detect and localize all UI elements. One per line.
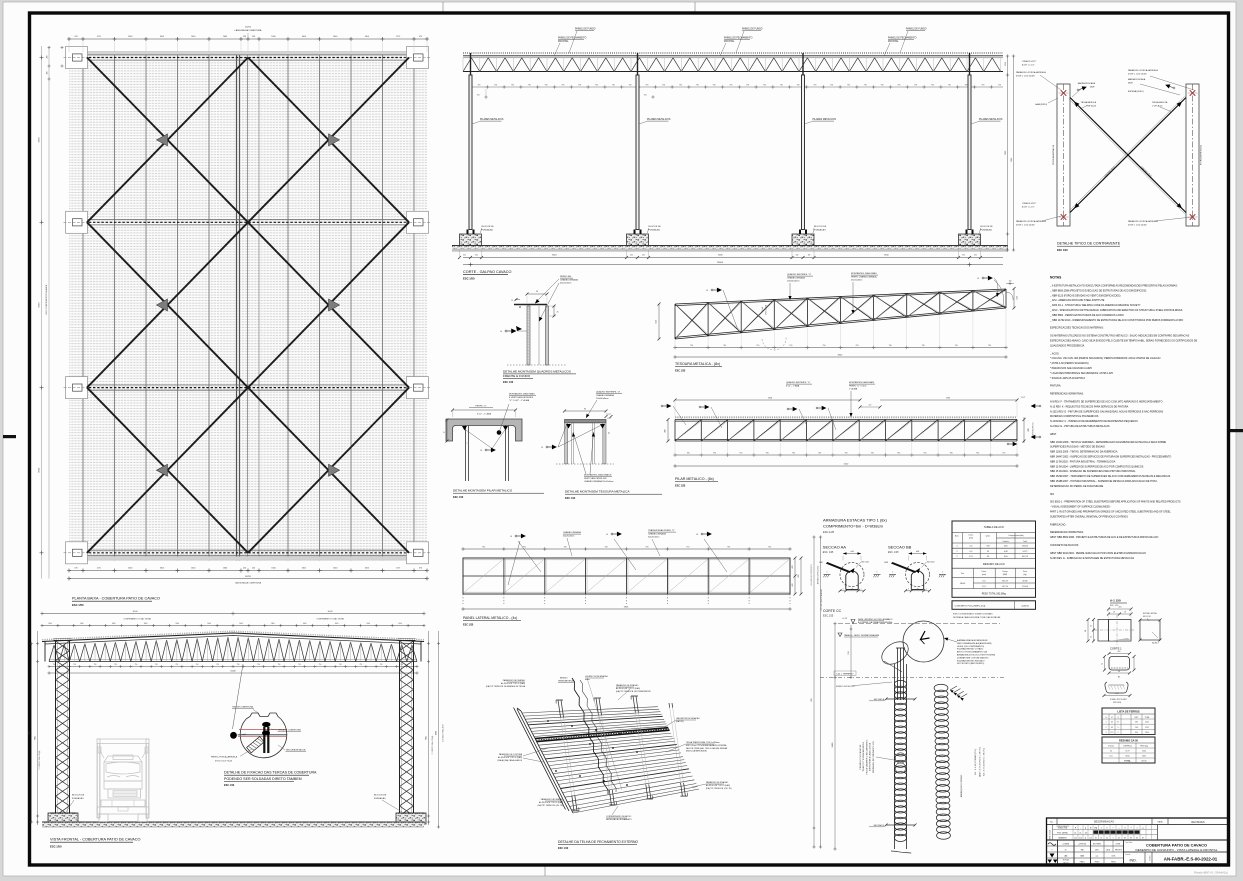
svg-text:TELHA-MESCLA: TELHA-MESCLA [1152, 101, 1168, 104]
svg-text:Plotada ABNT-A1 / 594x841(c): Plotada ABNT-A1 / 594x841(c) [1194, 871, 1228, 874]
svg-text:790: 790 [629, 84, 632, 86]
svg-text:0.85: 0.85 [1135, 722, 1138, 724]
svg-text:CIVIL: CIVIL [1111, 856, 1115, 858]
svg-text:(BATOR): (BATOR) [676, 720, 684, 723]
svg-text:QUADRO EM PERFIL "U": QUADRO EM PERFIL "U" [787, 273, 811, 276]
svg-text:790: 790 [645, 84, 648, 86]
svg-text:Ø (mm): Ø (mm) [1108, 746, 1114, 748]
svg-text:PAINEL DE FUNDO: PAINEL DE FUNDO [742, 28, 763, 31]
svg-text:GAIA (FURO): GAIA (FURO) [1035, 103, 1048, 106]
svg-text:750: 750 [278, 664, 281, 666]
svg-text:750: 750 [135, 664, 138, 666]
svg-text:FESO: FESO [1080, 862, 1085, 864]
svg-text:AL Ø1/4"x7/8" TIPO 2 (DAD): AL Ø1/4"x7/8" TIPO 2 (DAD) [498, 756, 522, 759]
svg-text:790: 790 [713, 84, 716, 86]
svg-text:790: 790 [823, 345, 826, 347]
svg-text:_ NBR 8800:2008 (PROJETO E EXE: _ NBR 8800:2008 (PROJETO E EXECUCAO DE E… [1049, 289, 1146, 292]
svg-text:FUNDO DO BLOCO: FUNDO DO BLOCO [836, 686, 855, 688]
svg-text:AL Ø1/4"x7/8" TIPO 2 (DAD): AL Ø1/4"x7/8" TIPO 2 (DAD) [539, 801, 563, 804]
svg-text:"PILASTICO" E ESPACADORES A: "PILASTICO" E ESPACADORES A [862, 742, 865, 772]
svg-text:BLOCOS DE: BLOCOS DE [981, 226, 994, 228]
svg-text:PAINEL DE FUNDO: PAINEL DE FUNDO [906, 28, 927, 31]
svg-text:FESO: FESO [1111, 862, 1116, 864]
svg-text:PESO (kg): PESO (kg) [1140, 746, 1148, 748]
svg-text:PINTURA:: PINTURA: [1050, 385, 1061, 388]
svg-text:ABNT: ABNT [1050, 433, 1057, 436]
svg-text:ø38: ø38 [850, 551, 853, 553]
svg-text:790: 790 [727, 546, 730, 548]
svg-text:a/LINHA: a/LINHA [1063, 843, 1070, 846]
svg-text:_ A ESTRUTURA METALICA FOI EXE: _ A ESTRUTURA METALICA FOI EXECUTADA CON… [1049, 285, 1178, 288]
svg-text:N-2 REV. E - PINTURA DE ESTRUT: N-2 REV. E - PINTURA DE ESTRUTURAS METAL… [1050, 425, 1110, 428]
svg-text:ABNT NBR 6118:2003 - PERMILI E: ABNT NBR 6118:2003 - PERMILI EDUCACAO PO… [1050, 552, 1146, 555]
svg-text:790: 790 [897, 84, 900, 86]
svg-text:400: 400 [665, 429, 667, 432]
svg-text:CORRENTE/EIXO DE APOIO: CORRENTE/EIXO DE APOIO [606, 815, 632, 818]
svg-text:DETERMINACAO DO PERFIL DE RUGO: DETERMINACAO DO PERFIL DE RUGOSIDADE [1050, 485, 1104, 488]
svg-text:MONTANTES, DIAGONAIS E: MONTANTES, DIAGONAIS E [584, 474, 612, 477]
svg-text:25x15x3mm: 25x15x3mm [851, 280, 863, 282]
svg-text:RESUMO CA-50: RESUMO CA-50 [1119, 739, 1139, 742]
svg-text:COBERTURA PATIO DE CAVACO: COBERTURA PATIO DE CAVACO [1146, 843, 1207, 848]
svg-text:750: 750 [400, 664, 403, 666]
svg-text:PERFIL EM: PERFIL EM [560, 276, 571, 278]
svg-text:TESOURA METALICA: TESOURA METALICA [1199, 145, 1202, 166]
svg-text:CONCRETO FCK=25MPa (m3): CONCRETO FCK=25MPa (m3) [955, 605, 986, 607]
svg-text:15: 15 [1102, 663, 1104, 665]
svg-text:2: 2 [956, 551, 957, 553]
svg-text:0,48: 0,48 [1004, 551, 1008, 553]
svg-text:- VISUAL ASSESSMENT OF SURFACE: - VISUAL ASSESSMENT OF SURFACE CLEANLINE… [1050, 506, 1111, 509]
svg-text:22.32: 22.32 [1145, 727, 1149, 729]
svg-text:AN-FABR.-E.S-00-2022-01: AN-FABR.-E.S-00-2022-01 [1164, 857, 1218, 862]
svg-text:TIRA DE COBERTURA: TIRA DE COBERTURA [232, 706, 254, 709]
svg-text:7000: 7000 [718, 255, 724, 257]
svg-text:1600: 1600 [160, 568, 164, 570]
svg-text:PERFIL+PORCA+ARRUELA: PERFIL+PORCA+ARRUELA [211, 756, 238, 759]
svg-text:# 5/8" A=25: # 5/8" A=25 [1086, 104, 1097, 107]
svg-text:(DA) TIP. TERM./CB. DE EMENDE: (DA) TIP. TERM./CB. DE EMENDE DE TELHA [486, 685, 526, 688]
svg-text:554: 554 [1017, 296, 1019, 299]
svg-text:790: 790 [813, 84, 816, 86]
svg-text:300: 300 [796, 255, 799, 257]
svg-text:Ø 5/8" x 1.1/2" A-325: Ø 5/8" x 1.1/2" A-325 [1128, 223, 1148, 226]
svg-text:NBR 15299:2007 - TRATAMENTO DE: NBR 15299:2007 - TRATAMENTO DE SUPERFICI… [1050, 475, 1171, 478]
svg-text:NOME: NOME [1116, 844, 1121, 846]
svg-text:SER DOBRADA PELA A (ANGRIGEM): SER DOBRADA PELA A (ANGRIGEM) [957, 642, 992, 645]
svg-text:RETIRADA CABECA SOBRA TOTAL DA: RETIRADA CABECA SOBRA TOTAL DAS ESTACAS. [953, 616, 1001, 619]
svg-text:EQUIVALENTE AO INDICADO: EQUIVALENTE AO INDICADO [957, 659, 985, 662]
svg-text:N4-Ø6.3: N4-Ø6.3 [1152, 643, 1158, 645]
svg-text:99: 99 [987, 556, 989, 558]
svg-text:_ NBR 5884 - PERFIS ESTRUTURAI: _ NBR 5884 - PERFIS ESTRUTURAIS DE ACO F… [1049, 314, 1124, 317]
svg-text:DESCRIMINACAO: DESCRIMINACAO [1094, 821, 1114, 824]
svg-text:790: 790 [746, 84, 749, 86]
svg-text:12,5: 12,5 [969, 556, 973, 558]
svg-text:ESC 1/50: ESC 1/50 [463, 277, 475, 281]
svg-text:(CADA) (DA) CADA xDADOS: (CADA) (DA) CADA xDADOS [497, 759, 523, 762]
svg-text:FUNDACAO: FUNDACAO [981, 228, 993, 231]
svg-text:BARRA ROSCADA: BARRA ROSCADA [1128, 78, 1146, 81]
svg-text:300: 300 [475, 255, 478, 257]
svg-text:370: 370 [986, 546, 989, 548]
svg-text:296,00: 296,00 [1022, 546, 1028, 548]
svg-text:(N): (N) [1094, 828, 1097, 830]
svg-text:N-13 REV. K - REQUISITOS TECNI: N-13 REV. K - REQUISITOS TECNICOS PARA S… [1050, 405, 1129, 408]
svg-text:12.5: 12.5 [1109, 756, 1112, 758]
svg-text:NIVEL INTERNO DO PISO ACABADO: NIVEL INTERNO DO PISO ACABADO [858, 618, 893, 621]
svg-text:10: 10 [500, 331, 502, 333]
svg-text:PESO TOTAL 562,38kg: PESO TOTAL 562,38kg [982, 592, 1007, 595]
svg-text:PAINEL LATERAL METALICO - (4x): PAINEL LATERAL METALICO - (4x) [463, 616, 517, 620]
svg-text:COMPRIMENTO TOTAL TELHA: COMPRIMENTO TOTAL TELHA [316, 617, 344, 620]
svg-text:ISO 8501-1 - PREPARATION OF ST: ISO 8501-1 - PREPARATION OF STEEL SUBSTR… [1050, 501, 1181, 504]
svg-text:motor: motor [585, 678, 590, 681]
svg-text:95: 95 [584, 409, 586, 411]
svg-text:6000: 6000 [39, 137, 41, 143]
svg-text:790: 790 [931, 84, 934, 86]
svg-text:170,00: 170,00 [1022, 586, 1028, 588]
svg-text:ABNT NBR 8800:2008 - PROJETO E: ABNT NBR 8800:2008 - PROJETO E ESTRUTURA… [1050, 536, 1159, 539]
svg-text:750: 750 [114, 664, 117, 666]
svg-text:(DA) TIP. TERM./CB. (CB. TE): (DA) TIP. TERM./CB. (CB. TE) [538, 804, 564, 807]
svg-text:10: 10 [706, 290, 708, 292]
svg-text:↓: ↓ [1080, 827, 1081, 830]
svg-text:12.5: 12.5 [1111, 732, 1114, 734]
svg-text:300: 300 [962, 255, 965, 257]
svg-text:10: 10 [606, 534, 608, 536]
svg-text:6.3: 6.3 [1111, 727, 1113, 729]
svg-text:RESUMO DE ACO: RESUMO DE ACO [983, 562, 1005, 566]
svg-text:ESC 1/10: ESC 1/10 [453, 496, 464, 499]
svg-text:790: 790 [914, 84, 917, 86]
svg-text:2": 2" [444, 431, 446, 433]
svg-text:≡: ≡ [1136, 827, 1137, 830]
svg-text:16040: 16040 [230, 670, 235, 672]
svg-text:AL Ø1/4"x7/8" TIPO 2 (DAD): AL Ø1/4"x7/8" TIPO 2 (DAD) [501, 682, 525, 685]
svg-text:Ø6.3 C/10: Ø6.3 C/10 [1143, 616, 1151, 618]
svg-text:DES.: DES. [1095, 850, 1099, 852]
svg-text:214: 214 [1089, 838, 1092, 840]
svg-text:1600: 1600 [160, 36, 164, 38]
svg-text:DETALHE MONTAGEM PILAR METALIC: DETALHE MONTAGEM PILAR METALICO [453, 489, 513, 493]
svg-text:ESC 1/10: ESC 1/10 [224, 784, 235, 787]
svg-text:1600: 1600 [302, 36, 306, 38]
svg-text:790: 790 [578, 84, 581, 86]
svg-text:DA TELHA DE FECHAMENTO: DA TELHA DE FECHAMENTO [606, 818, 632, 821]
svg-text:VOLUME DA ESCAVACAO: VOLUME DA ESCAVACAO [820, 588, 823, 611]
svg-text:PERFIL "U" 1"x1/2": PERFIL "U" 1"x1/2" [849, 385, 867, 387]
svg-text:B.L: B.L [1079, 833, 1081, 835]
svg-text:BLOCOS DE: BLOCOS DE [72, 795, 85, 797]
svg-text:* LIGACOES PRINCIPAIS E SECUND: * LIGACOES PRINCIPAIS E SECUNDARIAS: AST… [1050, 372, 1113, 375]
svg-text:6,3: 6,3 [970, 546, 973, 548]
svg-text:250: 250 [252, 36, 255, 38]
svg-text:CHAPA DOBRADA: CHAPA DOBRADA [648, 532, 666, 535]
svg-text:AL Ø1/4"x7/8" TIPO 2 (DAD): AL Ø1/4"x7/8" TIPO 2 (DAD) [616, 687, 640, 690]
svg-text:BLOCOS DE: BLOCOS DE [814, 226, 827, 228]
svg-text:Comprimentos(dm): Comprimentos(dm) [1008, 534, 1024, 537]
svg-text:Ø 5/8" x 1.1/2" A-325: Ø 5/8" x 1.1/2" A-325 [1016, 223, 1036, 226]
svg-text:COMPRIMENTO TOTAL TELHA: COMPRIMENTO TOTAL TELHA [123, 617, 151, 620]
svg-text:FUNDACAO: FUNDACAO [814, 228, 826, 231]
svg-text:790: 790 [545, 84, 548, 86]
svg-text:56.32: 56.32 [1142, 756, 1146, 758]
svg-text:790: 790 [477, 84, 480, 86]
svg-text:16761: 16761 [245, 576, 252, 578]
svg-text:790: 790 [679, 84, 682, 86]
svg-text:18: 18 [1124, 612, 1126, 614]
svg-text:1600: 1600 [144, 623, 148, 625]
svg-text:CHAPA DOBRADA: CHAPA DOBRADA [596, 394, 614, 397]
svg-text:ESPECIFICACOES TECNICAS DOS MA: ESPECIFICACOES TECNICAS DOS MATERIAIS: [1050, 327, 1104, 330]
svg-text:754: 754 [477, 95, 480, 97]
svg-text:ESC.1/25: ESC.1/25 [823, 615, 834, 618]
svg-text:250: 250 [252, 568, 255, 570]
svg-text:31.45: 31.45 [1145, 722, 1149, 724]
svg-text:N3 - 5 # 10,0 C/MAO (7%): N3 - 5 # 10,0 C/MAO (7%) [974, 749, 977, 775]
svg-text:6"x2" - 1" ABA: 6"x2" - 1" ABA [786, 384, 800, 387]
svg-text:A CONFER. DA OBRA (ESPESSURA): A CONFER. DA OBRA (ESPESSURA) [858, 621, 893, 624]
svg-text:VOLUME DE CONCRETO: VOLUME DE CONCRETO [811, 564, 813, 586]
svg-text:570: 570 [419, 568, 422, 570]
svg-text:790: 790 [864, 84, 867, 86]
svg-text:10: 10 [510, 536, 512, 538]
svg-text:VISTA FRONTAL - COBERTURA PATI: VISTA FRONTAL - COBERTURA PATIO DE CAVAC… [50, 838, 141, 842]
svg-text:ARMADURA DO BLOCO, ESTE PODERA: ARMADURA DO BLOCO, ESTE PODERA [957, 654, 995, 657]
svg-text:GUIDE (110 COMPRIMENTO): GUIDE (110 COMPRIMENTO) [957, 646, 984, 648]
svg-text:PARAFUSO+PORCA+ARRUELA: PARAFUSO+PORCA+ARRUELA [1016, 220, 1046, 223]
svg-text:PARAFUSO DE FIXACAO: PARAFUSO DE FIXACAO [706, 781, 729, 784]
svg-text:SECCAO AA: SECCAO AA [823, 545, 846, 550]
svg-text:DETALHE TIPICO DE CONTRAVENTE: DETALHE TIPICO DE CONTRAVENTE [1057, 242, 1121, 246]
svg-text:1175: 1175 [97, 36, 101, 38]
svg-text:7461: 7461 [34, 736, 36, 740]
svg-text:Num.: Num. [955, 536, 960, 538]
svg-text:1600: 1600 [191, 36, 195, 38]
svg-text:NBR 13 99:2002 - PINTURA INDUS: NBR 13 99:2002 - PINTURA INDUSTRIAL - TE… [1050, 460, 1116, 463]
svg-text:1600: 1600 [80, 623, 84, 625]
svg-text:TIRANTE Ø1/2": TIRANTE Ø1/2" [1022, 202, 1036, 205]
svg-text:NBR 15 99:2004 - LIMPEZA DE SU: NBR 15 99:2004 - LIMPEZA DE SUPERFICIE D… [1050, 465, 1144, 468]
svg-text:607,50: 607,50 [1022, 556, 1028, 558]
svg-text:TERCA DE COBERTURA: TERCA DE COBERTURA [278, 729, 302, 732]
svg-text:40.5: 40.5 [1117, 651, 1120, 653]
svg-text:250: 250 [243, 36, 246, 38]
svg-text:A 5/8" x 1.1/2": A 5/8" x 1.1/2" [1022, 63, 1035, 66]
svg-text:350: 350 [1085, 833, 1088, 835]
svg-text:_ NBR 14762:2010 - DIMENSIONAM: _ NBR 14762:2010 - DIMENSIONAMENTO DE ES… [1049, 319, 1183, 322]
svg-text:EQUIVALENTE AO COTADO.: EQUIVALENTE AO COTADO. [957, 648, 984, 651]
svg-text:_ AISC - SPECIFICATION FOR THE: _ AISC - SPECIFICATION FOR THE DESIGN, F… [1049, 309, 1183, 312]
svg-text:CORTE CC: CORTE CC [823, 609, 842, 613]
svg-text:82,38: 82,38 [1023, 581, 1028, 583]
svg-text:PAINEL DE FECHAMENTO: PAINEL DE FECHAMENTO [724, 37, 753, 40]
svg-text:COMPRIMENTO=6m - D=Ø38cm: COMPRIMENTO=6m - D=Ø38cm [823, 524, 884, 529]
svg-text:790: 790 [612, 84, 615, 86]
svg-text:ø38: ø38 [916, 551, 919, 553]
svg-text:ESC. 1/20: ESC. 1/20 [1110, 605, 1118, 607]
svg-text:790: 790 [830, 84, 833, 86]
svg-text:50x25x3mm: 50x25x3mm [563, 535, 575, 537]
svg-text:3 1/4": 3 1/4" [1021, 397, 1026, 399]
svg-text:28000: 28000 [717, 262, 724, 264]
svg-text:15: 15 [1091, 636, 1093, 638]
svg-text:8000: 8000 [28, 731, 30, 735]
svg-text:N5: N5 [1118, 677, 1120, 679]
svg-text:Unitario: Unitario [1003, 540, 1009, 543]
svg-text:114: 114 [1009, 281, 1012, 283]
svg-text:ONDULADA: ONDULADA [765, 304, 768, 315]
svg-text:FRONTAL: FRONTAL [888, 40, 899, 43]
svg-text:"U" 1"x1/2" - 1" ALMA: "U" 1"x1/2" - 1" ALMA [509, 399, 530, 402]
svg-text:NO PROJETO (ANTI FERRO).: NO PROJETO (ANTI FERRO). [957, 662, 985, 665]
svg-text:ESC 1/10: ESC 1/10 [565, 497, 576, 500]
svg-text:750: 750 [237, 664, 240, 666]
svg-text:FRONTAL: FRONTAL [558, 40, 569, 43]
svg-text:790: 790 [511, 84, 514, 86]
svg-text:40.5: 40.5 [1118, 607, 1121, 609]
svg-text:VERTICAIS PERFIL EM: VERTICAIS PERFIL EM [584, 477, 607, 480]
svg-text:1600: 1600 [303, 623, 307, 625]
svg-text:790: 790 [789, 345, 792, 347]
svg-text:99: 99 [987, 551, 989, 553]
svg-text:50: 50 [609, 432, 611, 434]
svg-text:1600: 1600 [335, 623, 339, 625]
svg-text:ESC 1/25: ESC 1/25 [675, 369, 686, 372]
svg-text:IND.: IND. [1130, 859, 1137, 863]
svg-text:LISTA DE FERROS: LISTA DE FERROS [1117, 710, 1140, 713]
svg-text:58.50: 58.50 [1145, 732, 1149, 734]
svg-text:69.76: 69.76 [1141, 761, 1147, 763]
svg-text:ESPERA (FURO): ESPERA (FURO) [1128, 90, 1144, 93]
svg-text:300: 300 [808, 255, 811, 257]
svg-text:(DA) TIP. TERM./CB. DE TERMOME: (DA) TIP. TERM./CB. DE TERMOMETRO [616, 690, 651, 693]
svg-text:750: 750 [380, 664, 383, 666]
svg-text:MONTANTES DIAGONAIS: MONTANTES DIAGONAIS [849, 381, 875, 384]
svg-text:Diam.: Diam. [969, 535, 974, 537]
svg-text:10: 10 [1100, 838, 1102, 840]
svg-text:Escala: Escala [1126, 854, 1131, 856]
svg-text:1600: 1600 [223, 36, 227, 38]
svg-text:6000: 6000 [39, 302, 41, 308]
svg-text:PILARES METALICOS: PILARES METALICOS [979, 118, 1003, 121]
svg-text:CA-60: CA-60 [960, 582, 965, 585]
svg-text:CORTE - GALPAO CAVACO: CORTE - GALPAO CAVACO [463, 270, 512, 274]
svg-text:DETALHE MONTAGEM QUADROS METAL: DETALHE MONTAGEM QUADROS METALICOS [503, 370, 571, 374]
svg-text:MONTANTES, DIAGONAIS: MONTANTES, DIAGONAIS [509, 393, 535, 396]
svg-text:NBR 15488:2007 - PINTURA INDUS: NBR 15488:2007 - PINTURA INDUSTRIAL - SU… [1050, 480, 1158, 483]
svg-text:PODENDO SER SOLDADAS DIRETO TA: PODENDO SER SOLDADAS DIRETO TAMBEM [224, 777, 302, 781]
svg-text:25x15x3mm: 25x15x3mm [560, 283, 572, 285]
svg-text:1600: 1600 [333, 568, 337, 570]
svg-text:790: 790 [797, 84, 800, 86]
svg-text:Ø 1/2"x1 1/2" H=25: Ø 1/2"x1 1/2" H=25 [215, 761, 233, 763]
svg-text:790: 790 [998, 84, 1001, 86]
svg-text:NOTAS: NOTAS [1050, 276, 1062, 280]
svg-text:FUNDACAO: FUNDACAO [374, 797, 386, 800]
svg-text:6"x2" - 1" ABA: 6"x2" - 1" ABA [477, 413, 491, 416]
svg-text:1600: 1600 [271, 36, 275, 38]
svg-text:1600: 1600 [223, 568, 227, 570]
svg-text:N2 = 9 # 6,3 E/SO G = 98 (7%): N2 = 9 # 6,3 E/SO G = 98 (7%) [984, 748, 986, 776]
svg-text:750: 750 [257, 664, 260, 666]
svg-text:TESOURA METALICA - (8x): TESOURA METALICA - (8x) [675, 362, 720, 366]
svg-text:ISO: ISO [1050, 493, 1054, 496]
svg-text:PARAFUSO DE FIXACAO: PARAFUSO DE FIXACAO [541, 798, 564, 801]
svg-text:335,75: 335,75 [1002, 581, 1008, 583]
svg-text:790: 790 [662, 84, 665, 86]
svg-text:(mm): (mm) [969, 537, 974, 539]
svg-text:790: 790 [955, 345, 958, 347]
svg-text:790: 790 [528, 84, 531, 86]
svg-text:750: 750 [339, 664, 342, 666]
svg-text:PARAFUSO DE FIXACAO: PARAFUSO DE FIXACAO [503, 679, 526, 682]
svg-text:1 1/2": 1 1/2" [607, 418, 612, 420]
svg-text:790: 790 [965, 84, 968, 86]
svg-text:TRANSVERSAS PERFIL "U": TRANSVERSAS PERFIL "U" [648, 529, 675, 532]
svg-text:(DESMONTAR A CADA 1,5M) DA: (DESMONTAR A CADA 1,5M) DA [869, 742, 872, 771]
svg-text:UNIT.: UNIT. [1135, 717, 1139, 719]
svg-text:790: 790 [723, 345, 726, 347]
svg-text:37: 37 [1117, 722, 1119, 724]
svg-text:PRIMAR A COLOCACAO DE: PRIMAR A COLOCACAO DE [859, 744, 862, 769]
svg-text:ALM.: ALM. [1107, 849, 1111, 852]
svg-text:PILARES METALICOS: PILARES METALICOS [813, 118, 837, 121]
svg-text:13.44: 13.44 [1142, 751, 1146, 753]
svg-text:QUADRO EM PERFIL "U": QUADRO EM PERFIL "U" [786, 381, 810, 384]
svg-text:AL Ø1/4"x7/8" TIPO 2 (DAD): AL Ø1/4"x7/8" TIPO 2 (DAD) [706, 784, 730, 787]
svg-text:ELEVADO FINAL ALTO: ELEVADO FINAL ALTO [442, 723, 445, 741]
svg-text:BLOCOS DE: BLOCOS DE [482, 226, 495, 228]
svg-text:BLOCOS DE: BLOCOS DE [374, 795, 387, 797]
svg-text:BARRA ROSCADA: BARRA ROSCADA [1078, 82, 1096, 85]
svg-text:ESP. 0,5mm. TRT=980MM NA FACE: ESP. 0,5mm. TRT=980MM NA FACE EXTERNA [686, 744, 727, 747]
svg-text:ESC 1/10: ESC 1/10 [558, 847, 569, 850]
svg-text:NBR 14847:2002 - INSPECAO DE S: NBR 14847:2002 - INSPECAO DE SERVICOS DE… [1050, 456, 1171, 459]
svg-text:Ø5/8": Ø5/8" [1090, 86, 1095, 88]
svg-text:1600: 1600 [398, 623, 402, 625]
svg-text:750: 750 [196, 664, 199, 666]
svg-text:790: 790 [1002, 452, 1005, 454]
svg-text:7461: 7461 [425, 736, 427, 740]
svg-text:ESPECIFICACOES ABAIXO. CASO SE: ESPECIFICACOES ABAIXO. CASO SEJA EXIGIDO… [1050, 340, 1198, 343]
svg-text:400: 400 [792, 566, 794, 569]
svg-text:15: 15 [1091, 625, 1093, 627]
svg-text:300: 300 [642, 255, 645, 257]
svg-text:1175: 1175 [97, 568, 101, 570]
svg-text:SECCAO A: SECCAO A [874, 698, 885, 701]
svg-text:750: 750 [298, 664, 301, 666]
svg-text:PAINEL DE FUNDO: PAINEL DE FUNDO [575, 28, 596, 31]
svg-text:10: 10 [541, 447, 543, 449]
svg-text:ESC 1/50: ESC 1/50 [50, 845, 62, 849]
svg-text:6.3: 6.3 [1110, 751, 1112, 753]
svg-text:TABELA DE ACO: TABELA DE ACO [984, 525, 1004, 529]
svg-text:CHAPA DOBRADA 25x15x3mm: CHAPA DOBRADA 25x15x3mm [584, 480, 614, 483]
svg-text:790: 790 [881, 84, 884, 86]
svg-text:1600: 1600 [333, 36, 337, 38]
svg-text:2.48: 2.48 [1135, 727, 1138, 729]
svg-text:▼: ▼ [1075, 827, 1077, 830]
svg-text:TELHA TRAPEZOIDAL TP40 L=980mm: TELHA TRAPEZOIDAL TP40 L=980mm [686, 741, 720, 744]
svg-text:(INST.) DA MERCEDES): (INST.) DA MERCEDES) [686, 750, 707, 753]
svg-text:790: 790 [766, 452, 769, 454]
svg-text:790: 790 [482, 546, 485, 548]
svg-text:64: 64 [1095, 838, 1097, 840]
svg-text:Total: Total [1023, 540, 1027, 543]
svg-text:MONTANTES, DIAGONAIS: MONTANTES, DIAGONAIS [851, 272, 877, 275]
